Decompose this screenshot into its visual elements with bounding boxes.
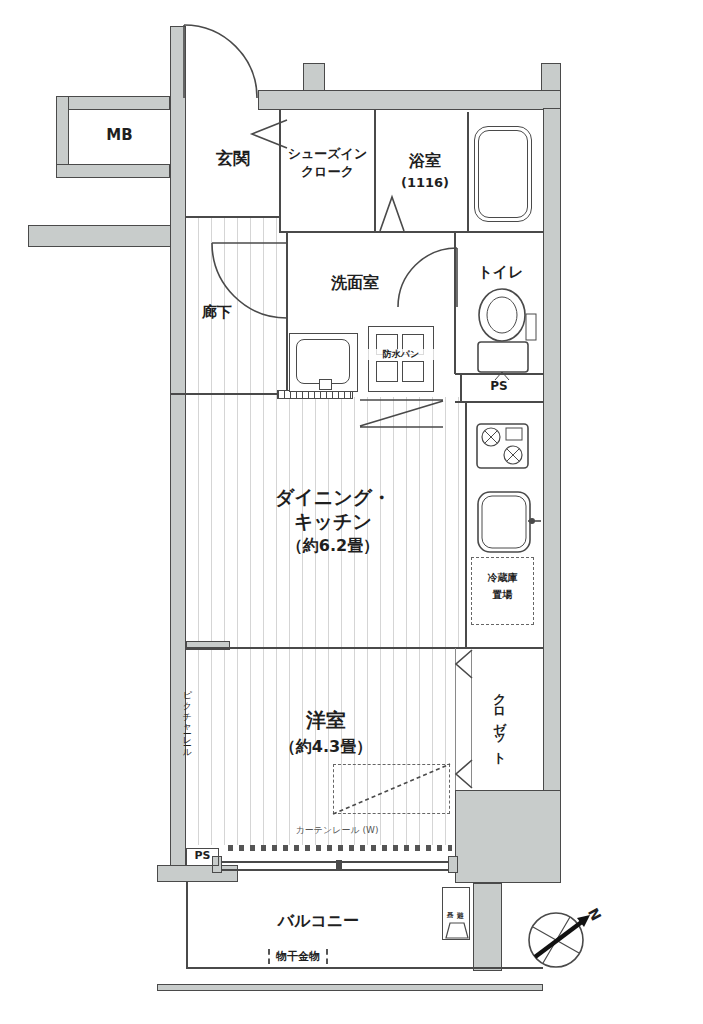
toilet-bowl-inner xyxy=(487,297,517,333)
stove-burner-cross xyxy=(507,449,519,461)
wall-mb-top xyxy=(56,96,170,110)
wall-line-toprow-bottom xyxy=(279,231,543,233)
wall-line-closet-left xyxy=(455,648,456,790)
wall-pillar-right xyxy=(541,63,561,91)
wall-line-balcony-left xyxy=(186,882,188,968)
label-closet: クロゼット xyxy=(491,655,507,785)
dropped-ceiling-dashed xyxy=(333,764,450,814)
washbasin-bowl xyxy=(296,339,350,384)
floor-plan: MB 玄関 シューズイン クローク 浴室 (1116) 廊下 洗面室 トイレ 防… xyxy=(0,0,703,1024)
label-fridge-1: 冷蔵庫 xyxy=(472,572,533,585)
wall-line-genkan-corridor xyxy=(186,216,280,218)
washbasin-tap xyxy=(319,379,332,390)
wall-line-kitchen-counter xyxy=(465,402,467,648)
label-shoes-closet-2: クローク xyxy=(280,164,375,180)
kitchen-sink-inner xyxy=(482,496,526,548)
kitchen-sink xyxy=(478,492,530,552)
label-evacuation-1: 避難 xyxy=(455,890,464,922)
wall-line-ps-kitchen xyxy=(455,401,543,403)
stove-burner xyxy=(482,428,500,446)
label-balcony: バルコニー xyxy=(246,911,391,931)
balcony-rail-inner xyxy=(186,967,543,969)
compass-circle xyxy=(529,913,583,967)
window-center-lock xyxy=(336,860,342,871)
waterproof-pan-corner xyxy=(376,361,398,382)
label-fridge-2: 置場 xyxy=(472,589,533,602)
label-laundry-hardware: 物干金物 xyxy=(248,950,348,964)
closet-door-top xyxy=(456,650,472,678)
shoes-closet-door xyxy=(252,120,287,148)
closet-door-bottom xyxy=(456,760,472,788)
label-dk-1: ダイニング・ xyxy=(233,486,433,510)
label-ps-lower: PS xyxy=(186,849,219,863)
wall-block-bottom-right xyxy=(455,790,561,883)
label-corridor: 廊下 xyxy=(188,303,246,322)
toilet-side-unit xyxy=(526,314,536,340)
wall-pillar-left xyxy=(303,63,325,91)
waterproof-pan-corner xyxy=(402,361,424,382)
label-bathroom-size: (1116) xyxy=(385,175,465,191)
laundry-hardware-text: 物干金物 xyxy=(268,949,328,964)
wall-below-mb xyxy=(28,225,186,247)
wall-mb-bottom xyxy=(56,164,170,178)
label-evacuation-2: 器具 xyxy=(445,890,454,922)
window-line-1 xyxy=(218,861,452,863)
wall-line-toilet-ps xyxy=(455,373,543,375)
wall-line-dk-west xyxy=(186,647,543,649)
label-ps-upper: PS xyxy=(455,379,543,394)
label-waterproof-pan: 防水パン xyxy=(368,349,434,360)
stove-burner xyxy=(504,446,522,464)
stove-grill xyxy=(506,428,522,440)
wall-line-corridor-washroom xyxy=(286,232,288,397)
label-toilet: トイレ xyxy=(458,263,543,282)
wall-balcony-rail-outer xyxy=(157,984,543,991)
label-washroom: 洗面室 xyxy=(300,273,410,293)
wall-line-bath-divider xyxy=(467,112,469,232)
stove xyxy=(477,424,528,468)
toilet-tank xyxy=(478,342,528,372)
label-dk-size: （約6.2畳） xyxy=(233,536,433,556)
wall-top-outer xyxy=(258,90,561,110)
closet-door-track xyxy=(471,650,472,788)
window-line-2 xyxy=(218,869,452,871)
bathtub-inner xyxy=(478,130,528,218)
label-dk-2: キッチン xyxy=(233,510,433,534)
compass-arrow xyxy=(535,921,583,957)
label-mb: MB xyxy=(69,126,170,145)
label-compass-north: N xyxy=(582,902,607,928)
label-western-room-size: （約4.3畳） xyxy=(226,737,426,757)
wall-ps-bottom-band xyxy=(157,865,238,882)
label-picture-rail: ピクチャーレール xyxy=(181,656,192,781)
label-western-room: 洋室 xyxy=(226,708,426,733)
curtain-rail-ticks xyxy=(228,845,452,851)
wall-line-dk-door-track xyxy=(170,393,277,395)
entrance-door-arc xyxy=(184,25,257,98)
label-bathroom: 浴室 xyxy=(385,151,465,171)
wall-balcony-divider xyxy=(473,883,502,971)
wall-right-outer xyxy=(543,108,561,883)
stove-burner-cross xyxy=(485,431,497,443)
toilet-bowl xyxy=(479,289,525,341)
compass-cross xyxy=(533,917,579,963)
label-shoes-closet-1: シューズイン xyxy=(280,146,375,162)
label-curtain-rail: カーテンレール (W) xyxy=(262,825,412,836)
label-genkan: 玄関 xyxy=(188,148,278,169)
wall-line-washroom-toilet xyxy=(454,232,456,374)
kitchen-tap-knob xyxy=(530,519,534,523)
bathroom-folding-door xyxy=(380,197,404,231)
window-post-right xyxy=(448,856,458,873)
